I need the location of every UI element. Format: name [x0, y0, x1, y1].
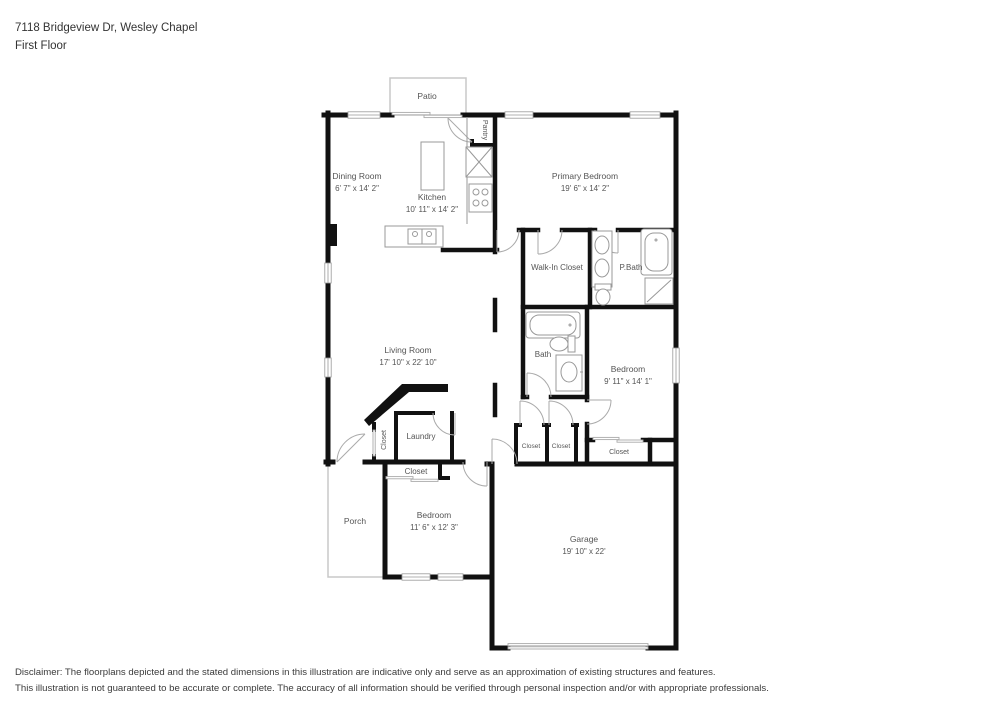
bedroom-right-door-arc [587, 400, 611, 424]
primary-bedroom-dims: 19' 6" x 14' 2" [561, 184, 609, 193]
front-wall [326, 462, 676, 464]
pantry-label: Pantry [481, 120, 488, 141]
patio-slider-panel-2 [424, 115, 462, 117]
front-bedroom-dims: 11' 6" x 12' 3" [410, 523, 458, 532]
floor-plan-drawing: Patio Pantry Dining Room 6' 7" x 14' 2" … [0, 0, 1000, 707]
disclaimer-line-2: This illustration is not guaranteed to b… [15, 681, 769, 697]
bedroom-right-dims: 9' 11" x 14' 1" [604, 377, 652, 386]
hall-closet-a-label: Closet [522, 443, 541, 450]
kitchen-dims: 10' 11" x 14' 2" [406, 205, 458, 214]
wide-closet-label: Closet [609, 449, 629, 456]
garage-door-panel-2 [508, 647, 648, 649]
hall-closet-b-label: Closet [552, 443, 571, 450]
floorplan-page: 7118 Bridgeview Dr, Wesley Chapel First … [0, 0, 1000, 707]
kitchen-island [421, 142, 444, 190]
primary-bedroom-door-arc [497, 230, 519, 252]
living-room-dims: 17' 10" x 22' 10" [379, 358, 436, 367]
patio-slider-panel-1 [392, 112, 430, 114]
bath-toilet-bowl [550, 337, 568, 351]
laundry-label: Laundry [407, 432, 436, 441]
dining-room-label: Dining Room [332, 171, 381, 181]
kitchen-label: Kitchen [418, 192, 447, 202]
laundry-closet-label: Closet [381, 430, 388, 450]
walkin-closet-door-arc [538, 230, 562, 254]
entry-diagonal-wall [364, 384, 448, 426]
garage-label: Garage [570, 534, 599, 544]
outdoor-structures [328, 78, 466, 577]
walk-in-closet-label: Walk-In Closet [531, 263, 583, 272]
front-closet-label: Closet [405, 467, 428, 476]
bath-toilet-tank [568, 336, 575, 352]
disclaimer-line-1: Disclaimer: The floorplans depicted and … [15, 665, 769, 681]
disclaimer-block: Disclaimer: The floorplans depicted and … [15, 665, 769, 697]
front-door-arc [337, 434, 365, 462]
pantry-bottom-wall [472, 141, 495, 146]
windows [325, 112, 679, 580]
bedroom-right-label: Bedroom [611, 364, 646, 374]
pantry-door-arc [448, 118, 472, 142]
porch-label: Porch [344, 516, 366, 526]
stove [469, 184, 492, 212]
garage-door-panel-1 [508, 644, 648, 646]
dining-room-dims: 6' 7" x 14' 2" [335, 184, 379, 193]
front-closet-slider-1 [386, 477, 413, 479]
laundry-closet-slider [373, 430, 375, 456]
front-bedroom-label: Bedroom [417, 510, 452, 520]
hall-closet-b-door-arc [549, 401, 573, 425]
primary-bath-label: P.Bath [620, 263, 643, 272]
garage-dims: 19' 10" x 22' [562, 547, 606, 556]
front-closet-slider-2 [411, 479, 438, 481]
bath-door-arc [527, 373, 551, 397]
entry-hall-door-arc [492, 439, 517, 464]
bath-vanity [556, 355, 582, 391]
living-room-label: Living Room [384, 345, 431, 355]
wide-closet-slider-2 [617, 440, 643, 442]
wide-closet-slider-1 [593, 437, 619, 439]
bath-label: Bath [535, 350, 551, 359]
primary-bath-tub [641, 229, 672, 275]
hall-closet-a-door-arc [520, 401, 544, 425]
primary-bedroom-label: Primary Bedroom [552, 171, 618, 181]
primary-bath-toilet-bowl [596, 289, 610, 305]
front-bedroom-door-arc [463, 462, 487, 486]
patio-label: Patio [417, 91, 437, 101]
left-wall-stub [326, 224, 337, 246]
